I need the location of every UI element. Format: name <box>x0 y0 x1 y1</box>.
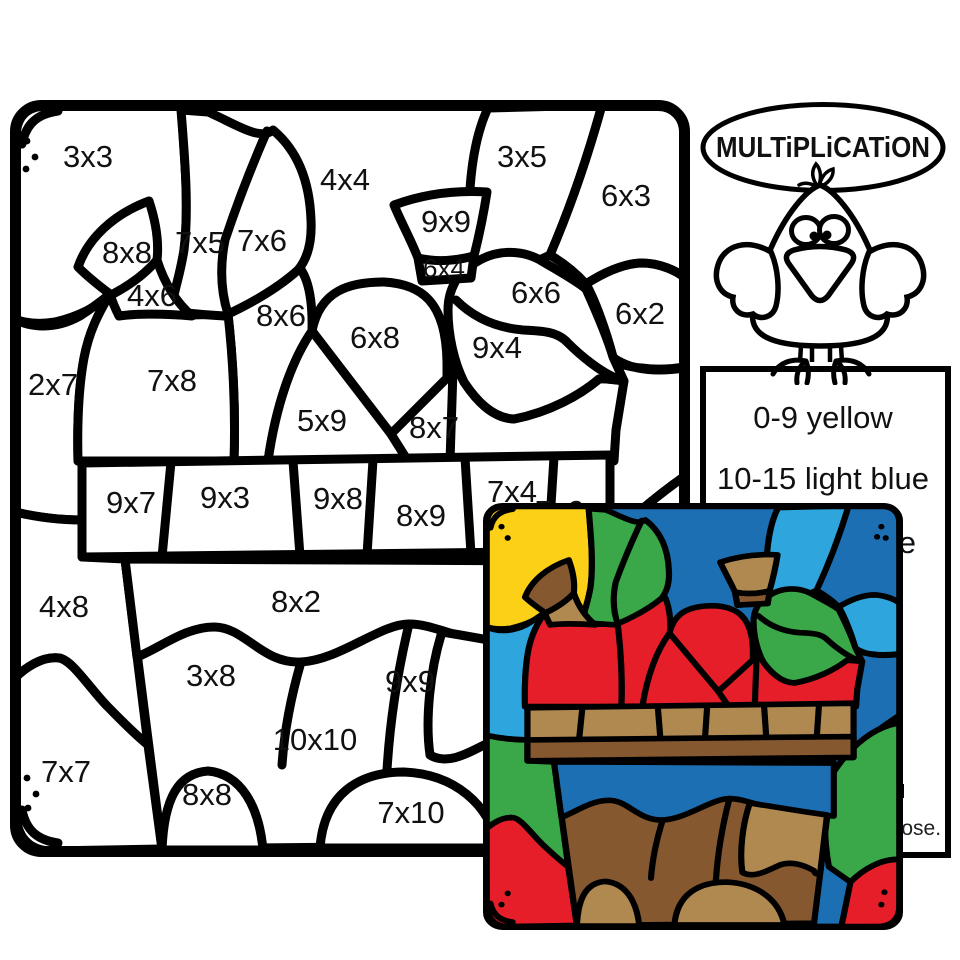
svg-text:3x3: 3x3 <box>63 139 113 174</box>
svg-text:4x6: 4x6 <box>127 278 177 313</box>
svg-text:3x5: 3x5 <box>497 139 547 174</box>
svg-text:6x2: 6x2 <box>615 296 665 331</box>
svg-text:7x5: 7x5 <box>175 225 225 260</box>
svg-text:6x3: 6x3 <box>601 178 651 213</box>
svg-text:8x8: 8x8 <box>102 235 152 270</box>
svg-text:3x8: 3x8 <box>186 658 236 693</box>
svg-text:8x6: 8x6 <box>256 298 306 333</box>
svg-text:8x9: 8x9 <box>396 498 446 533</box>
svg-text:9x7: 9x7 <box>106 485 156 520</box>
svg-text:8x7: 8x7 <box>409 410 459 445</box>
svg-text:9x9: 9x9 <box>421 204 471 239</box>
svg-text:6x8: 6x8 <box>350 320 400 355</box>
svg-text:2x7: 2x7 <box>28 367 78 402</box>
svg-text:8x8: 8x8 <box>182 777 232 812</box>
svg-text:6x6: 6x6 <box>511 275 561 310</box>
svg-text:7x7: 7x7 <box>41 754 91 789</box>
svg-text:9x3: 9x3 <box>200 480 250 515</box>
svg-text:7x10: 7x10 <box>377 795 444 830</box>
svg-text:9x4: 9x4 <box>472 330 522 365</box>
svg-text:5x9: 5x9 <box>297 403 347 438</box>
svg-text:8x2: 8x2 <box>271 584 321 619</box>
svg-text:9x8: 9x8 <box>313 481 363 516</box>
svg-text:4x4: 4x4 <box>320 162 370 197</box>
svg-text:7x6: 7x6 <box>237 223 287 258</box>
svg-text:10x10: 10x10 <box>273 722 357 757</box>
svg-text:6x4: 6x4 <box>423 253 465 283</box>
svg-text:7x8: 7x8 <box>147 363 197 398</box>
svg-text:9x9: 9x9 <box>385 664 435 699</box>
svg-text:0-9 yellow: 0-9 yellow <box>753 400 893 435</box>
svg-text:4x8: 4x8 <box>39 589 89 624</box>
svg-text:10-15 light blue: 10-15 light blue <box>717 461 929 496</box>
